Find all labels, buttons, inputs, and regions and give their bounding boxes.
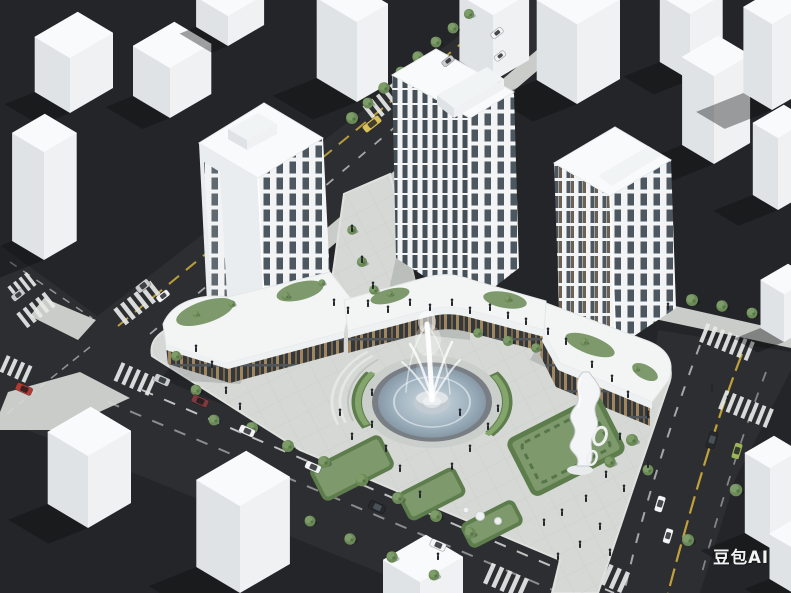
tree-foliage	[752, 312, 755, 315]
building-west-face	[743, 7, 772, 110]
pedestrian	[623, 485, 626, 493]
pedestrian-body	[627, 393, 629, 398]
tree-foliage	[436, 41, 439, 44]
pedestrian	[497, 405, 500, 413]
tree-foliage	[196, 314, 198, 316]
tree-foliage	[286, 296, 288, 298]
pedestrian	[565, 338, 568, 346]
pedestrian	[487, 423, 490, 431]
pedestrian-head	[409, 299, 412, 302]
spray-mist	[416, 352, 448, 388]
pedestrian	[437, 553, 440, 561]
pedestrian-body	[543, 521, 545, 526]
tree-foliage	[636, 369, 638, 371]
pedestrian-body	[711, 387, 713, 392]
pedestrian	[627, 391, 630, 399]
pedestrian-head	[561, 509, 564, 512]
small-sculpture	[476, 512, 485, 521]
pedestrian-head	[371, 389, 374, 392]
tree-foliage	[469, 13, 472, 16]
pedestrian-body	[225, 389, 227, 394]
pedestrian-body	[619, 435, 621, 440]
pedestrian	[351, 225, 354, 233]
pedestrian-body	[429, 306, 431, 311]
pedestrian	[579, 541, 582, 549]
pedestrian-body	[451, 301, 453, 306]
tree-foliage	[350, 538, 353, 541]
pedestrian-head	[225, 387, 228, 390]
tree-foliage	[368, 102, 371, 105]
tree-foliage	[390, 294, 392, 296]
tree-foliage	[632, 439, 635, 442]
tree-foliage	[310, 520, 313, 523]
pedestrian-head	[195, 345, 198, 348]
tree-foliage	[610, 461, 613, 464]
pedestrian-head	[579, 541, 582, 544]
pedestrian-body	[565, 340, 567, 345]
pedestrian	[387, 306, 390, 314]
watermark-text: 豆包AI	[713, 547, 769, 567]
tree-foliage	[508, 340, 511, 343]
pedestrian	[585, 495, 588, 503]
tree-foliage	[392, 556, 395, 559]
pedestrian-head	[333, 299, 336, 302]
pedestrian-head	[347, 307, 350, 310]
tower-center	[392, 49, 519, 306]
pedestrian-head	[667, 303, 670, 306]
pedestrian-body	[351, 435, 353, 440]
watermark: 豆包AI 豆包AI	[713, 547, 770, 568]
pedestrian	[371, 421, 374, 429]
pedestrian-head	[487, 423, 490, 426]
pedestrian	[351, 433, 354, 441]
tree-foliage	[176, 355, 179, 358]
pedestrian-body	[409, 301, 411, 306]
pedestrian-head	[211, 361, 214, 364]
building-east-face	[44, 133, 77, 260]
pedestrian-head	[372, 282, 375, 285]
pedestrian-head	[371, 421, 374, 424]
pedestrian-body	[489, 306, 491, 311]
pedestrian	[711, 385, 714, 393]
pedestrian-body	[469, 447, 471, 452]
tree-foliage	[536, 348, 539, 351]
pedestrian-body	[339, 411, 341, 416]
pedestrian	[361, 256, 364, 264]
pedestrian-body	[195, 347, 197, 352]
pedestrian	[339, 409, 342, 417]
tree-foliage	[288, 445, 291, 448]
pedestrian	[409, 299, 412, 307]
pedestrian-body	[727, 398, 729, 403]
pedestrian-head	[611, 375, 614, 378]
building-west-face	[12, 133, 44, 260]
pedestrian-body	[399, 467, 401, 472]
pedestrian	[605, 471, 608, 479]
pedestrian-head	[543, 519, 546, 522]
pedestrian-head	[609, 549, 612, 552]
pedestrian	[611, 375, 614, 383]
pedestrian-body	[547, 330, 549, 335]
pedestrian	[557, 553, 560, 561]
pedestrian	[489, 304, 492, 312]
scene-image: 豆包AI 豆包AI	[0, 0, 791, 593]
pedestrian-body	[367, 302, 369, 307]
pedestrian	[609, 549, 612, 557]
pedestrian-body	[585, 497, 587, 502]
pedestrian-body	[525, 320, 527, 325]
tree-foliage	[508, 299, 510, 301]
tree-foliage	[478, 333, 481, 336]
tree-foliage	[436, 515, 439, 518]
pedestrian-head	[599, 523, 602, 526]
pedestrian-head	[339, 409, 342, 412]
pedestrian	[591, 361, 594, 369]
pedestrian-body	[579, 543, 581, 548]
pedestrian	[195, 345, 198, 353]
pedestrian	[347, 307, 350, 315]
pedestrian-head	[623, 485, 626, 488]
pedestrian-body	[487, 425, 489, 430]
pedestrian-head	[497, 405, 500, 408]
pedestrian-body	[211, 363, 213, 368]
pedestrian	[561, 509, 564, 517]
pedestrian	[667, 303, 670, 311]
pedestrian-body	[239, 405, 241, 410]
pedestrian	[547, 328, 550, 336]
tree-foliage	[196, 389, 199, 392]
pedestrian	[419, 491, 422, 499]
tree-foliage	[722, 305, 725, 308]
pedestrian-body	[451, 465, 453, 470]
pedestrian	[399, 465, 402, 473]
pedestrian-body	[667, 305, 669, 310]
pedestrian-body	[361, 258, 363, 263]
pedestrian	[211, 361, 214, 369]
pedestrian-body	[469, 309, 471, 314]
pedestrian-head	[591, 361, 594, 364]
pedestrian-body	[437, 555, 439, 560]
pedestrian	[647, 411, 650, 419]
tree-foliage	[362, 479, 365, 482]
pedestrian-head	[585, 495, 588, 498]
pedestrian-body	[647, 463, 649, 468]
pedestrian-head	[367, 300, 370, 303]
tree-foliage	[470, 532, 473, 535]
rendering-canvas: 豆包AI 豆包AI	[0, 0, 791, 593]
pedestrian-body	[419, 493, 421, 498]
building-west-face	[753, 123, 778, 210]
pedestrian-head	[451, 463, 454, 466]
pedestrian	[469, 445, 472, 453]
pedestrian-head	[469, 445, 472, 448]
pedestrian-body	[347, 309, 349, 314]
pedestrian	[459, 409, 462, 417]
pedestrian	[647, 461, 650, 469]
pedestrian-head	[419, 491, 422, 494]
pedestrian	[372, 282, 375, 290]
pedestrian-body	[459, 411, 461, 416]
pedestrian	[619, 433, 622, 441]
tree-foliage	[324, 461, 327, 464]
pedestrian-head	[507, 312, 510, 315]
tree-foliage	[322, 283, 324, 285]
tree-foliage	[736, 489, 739, 492]
pedestrian-body	[351, 227, 353, 232]
tree-foliage	[232, 304, 234, 306]
pedestrian	[371, 389, 374, 397]
pedestrian	[727, 396, 730, 404]
pedestrian	[525, 318, 528, 326]
pedestrian-head	[351, 433, 354, 436]
tree-foliage	[374, 290, 377, 293]
pedestrian-body	[599, 525, 601, 530]
pedestrian	[599, 523, 602, 531]
pedestrian	[367, 300, 370, 308]
pedestrian-body	[507, 314, 509, 319]
pedestrian-body	[557, 555, 559, 560]
pedestrian	[451, 463, 454, 471]
pedestrian-head	[399, 465, 402, 468]
pedestrian-body	[647, 413, 649, 418]
pedestrian-body	[609, 551, 611, 556]
pedestrian-head	[525, 318, 528, 321]
pedestrian-body	[497, 407, 499, 412]
pedestrian-head	[489, 304, 492, 307]
tree-foliage	[688, 539, 691, 542]
pedestrian-head	[351, 225, 354, 228]
pedestrian-body	[385, 447, 387, 452]
pedestrian-head	[565, 338, 568, 341]
pedestrian-head	[727, 396, 730, 399]
pedestrian-head	[605, 471, 608, 474]
pedestrian-head	[385, 445, 388, 448]
pedestrian-head	[361, 256, 364, 259]
pedestrian-body	[371, 391, 373, 396]
pedestrian	[507, 312, 510, 320]
pedestrian-head	[647, 461, 650, 464]
pedestrian-head	[459, 409, 462, 412]
pedestrian-head	[711, 385, 714, 388]
pedestrian-head	[619, 433, 622, 436]
small-sculpture	[463, 507, 469, 513]
pedestrian-head	[239, 403, 242, 406]
pedestrian-body	[591, 363, 593, 368]
pedestrian-body	[611, 377, 613, 382]
tree-foliage	[384, 87, 387, 90]
tree-foliage	[692, 299, 695, 302]
tree-foliage	[453, 27, 456, 30]
pedestrian	[469, 307, 472, 315]
pedestrian	[225, 387, 228, 395]
pedestrian-head	[557, 553, 560, 556]
pedestrian-head	[387, 306, 390, 309]
pedestrian-body	[371, 423, 373, 428]
pedestrian	[333, 299, 336, 307]
pedestrian-body	[333, 301, 335, 306]
pedestrian-body	[387, 308, 389, 313]
pedestrian-head	[429, 304, 432, 307]
pedestrian-body	[561, 511, 563, 516]
pedestrian	[543, 519, 546, 527]
pedestrian-head	[469, 307, 472, 310]
pedestrian-body	[605, 473, 607, 478]
tree-foliage	[352, 117, 355, 120]
pedestrian	[385, 445, 388, 453]
pedestrian-head	[647, 411, 650, 414]
pedestrian	[239, 403, 242, 411]
pedestrian	[451, 299, 454, 307]
tree-foliage	[214, 419, 217, 422]
building-west-face	[745, 453, 770, 548]
small-sculpture	[495, 518, 502, 525]
pedestrian-head	[451, 299, 454, 302]
tree-foliage	[398, 497, 401, 500]
spray-mist	[415, 324, 441, 356]
pedestrian-head	[547, 328, 550, 331]
pedestrian	[429, 304, 432, 312]
pedestrian-body	[623, 487, 625, 492]
pedestrian-head	[437, 553, 440, 556]
tree-foliage	[434, 574, 437, 577]
tree-foliage	[584, 342, 586, 344]
pedestrian-body	[372, 284, 374, 289]
pedestrian-head	[627, 391, 630, 394]
tree-foliage	[648, 469, 651, 472]
